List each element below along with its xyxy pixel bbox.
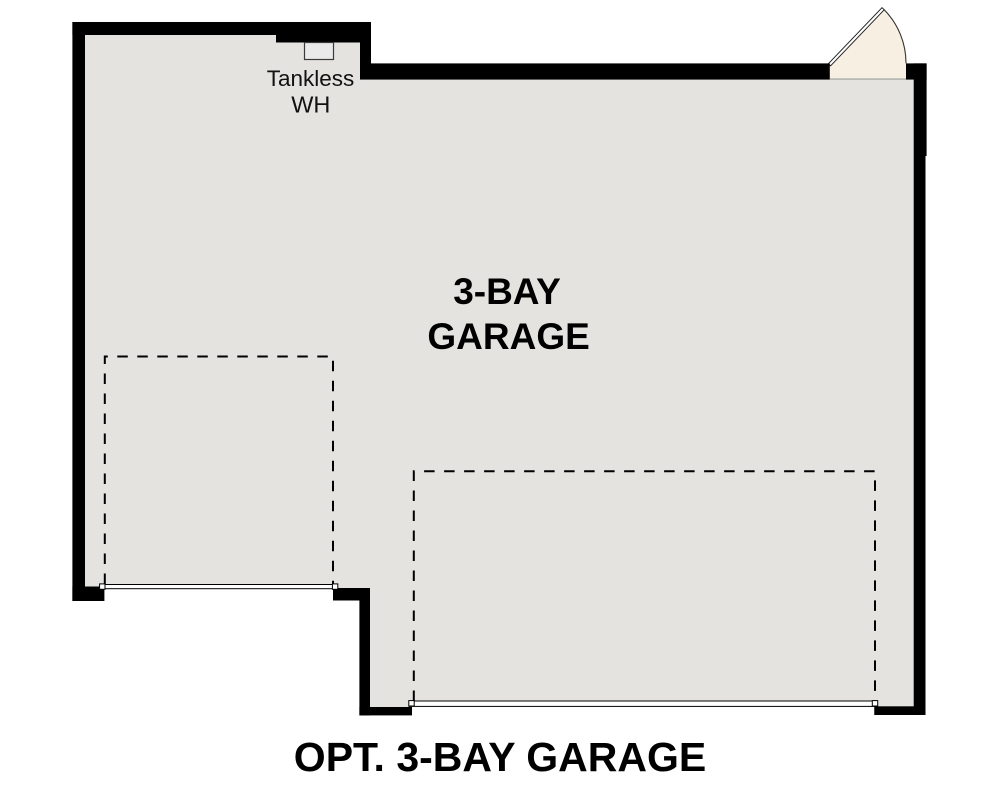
svg-text:3-BAY: 3-BAY [453,271,561,312]
svg-text:Tankless: Tankless [267,66,355,91]
svg-text:OPT. 3-BAY GARAGE: OPT. 3-BAY GARAGE [294,734,706,780]
svg-text:WH: WH [291,91,330,117]
svg-text:GARAGE: GARAGE [427,316,589,357]
